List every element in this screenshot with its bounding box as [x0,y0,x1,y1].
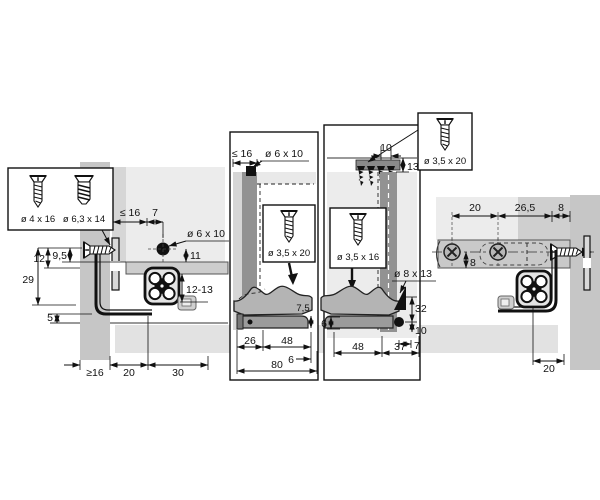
dim-panel-max: ≤ 16 [232,148,253,160]
drill-label: ø 6 x 10 [187,228,225,240]
drill-hole-8x13 [394,317,404,327]
dim-32: 32 [415,303,427,315]
dim-8v: 8 [470,257,476,269]
dim-5: 5 [47,312,53,324]
screw-spec-box-front: ø 3,5 x 20 [263,205,315,262]
dim-20b: 20 [543,363,555,375]
screw-spec-box-rear: ø 3,5 x 16 [330,208,386,268]
dim-10b: 10 [415,325,427,337]
dim-11: 11 [190,250,201,262]
dim-37: 37 [394,341,406,353]
dim-13: 13 [407,161,419,173]
dim-20: 20 [469,202,481,214]
drill-label: ø 6 x 10 [265,148,303,160]
bracket-notch [583,258,591,268]
dim-6: 6 [288,354,294,366]
dim-12: 12 [33,253,45,265]
drill-hole-top [246,166,256,176]
cabinet-interior [126,167,225,262]
screw-size-label: ø 3,5 x 16 [337,252,379,263]
quadro-rail-profile [145,268,179,304]
dim-12-13: 12-13 [186,284,213,296]
bracket-notch [111,261,121,271]
dim-26: 26 [244,335,256,347]
dim-6b: 6 [321,318,327,330]
dim-7: 7 [152,207,158,219]
dim-48b: 48 [352,341,364,353]
dim-48: 48 [281,335,293,347]
dim-ge16: ≥16 [86,367,104,379]
dim-29: 29 [22,274,34,286]
screw-size-label: ø 6,3 x 14 [63,214,105,225]
dim-9-5: 9,5 [52,250,67,262]
drawer-slide-installation-diagram: ø 4 x 16 ø 6,3 x 14 ≤ 16 7 ø 6 x 10 11 1… [0,0,600,500]
dim-8: 8 [558,202,564,214]
technical-diagram-page: ø 4 x 16 ø 6,3 x 14 ≤ 16 7 ø 6 x 10 11 1… [0,0,600,500]
dim-26-5: 26,5 [515,202,536,214]
dim-panel-max: ≤ 16 [120,207,141,219]
screw-size-label: ø 4 x 16 [21,214,55,225]
dim-20: 20 [123,367,135,379]
dim-80: 80 [271,359,283,371]
panel-top-zone [257,172,316,184]
drill-label: ø 8 x 13 [394,268,432,280]
quadro-rail-profile-right [517,271,551,307]
screw-size-label: ø 3,5 x 20 [268,248,310,259]
view-drawer-front: ≤ 16 ø 6 x 10 ø 3,5 x 20 7,5 26 48 6 80 [230,132,318,380]
dim-7-5: 7,5 [296,303,309,314]
dim-30: 30 [172,367,184,379]
screw-size-label: ø 3,5 x 20 [424,156,466,167]
